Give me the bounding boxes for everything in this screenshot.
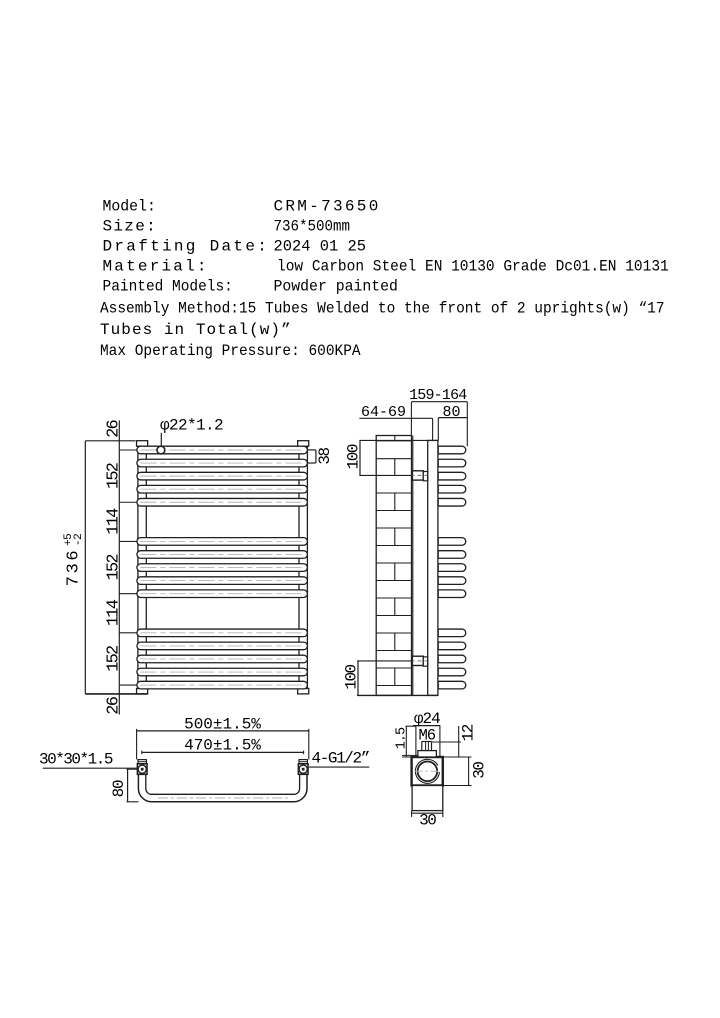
- svg-text:Assembly Method:15 Tubes Welde: Assembly Method:15 Tubes Welded to the f…: [100, 299, 665, 318]
- svg-text:26: 26: [104, 696, 123, 714]
- svg-text:80: 80: [110, 780, 128, 797]
- svg-text:114: 114: [104, 599, 123, 626]
- svg-text:Size:: Size:: [103, 218, 158, 236]
- svg-text:low Carbon Steel EN 10130 Grad: low Carbon Steel EN 10130 Grade Dc01.EN …: [277, 257, 669, 276]
- svg-text:38: 38: [316, 448, 334, 465]
- svg-text:CRM-73650: CRM-73650: [274, 198, 381, 216]
- svg-text:26: 26: [104, 420, 123, 438]
- svg-text:736: 736: [65, 548, 84, 586]
- svg-text:30: 30: [419, 812, 436, 830]
- svg-text:12: 12: [459, 724, 477, 741]
- svg-text:1.5: 1.5: [395, 727, 410, 749]
- svg-text:Max Operating Pressure: 600KPA: Max Operating Pressure: 600KPA: [100, 341, 361, 360]
- svg-text:4-G1/2”: 4-G1/2”: [312, 750, 370, 768]
- svg-text:Model:: Model:: [103, 197, 156, 216]
- svg-text:152: 152: [104, 646, 123, 672]
- svg-text:152: 152: [104, 555, 123, 581]
- svg-text:Painted Models:: Painted Models:: [103, 277, 233, 296]
- svg-text:500±1.5%: 500±1.5%: [184, 716, 261, 734]
- svg-text:30: 30: [471, 762, 489, 779]
- svg-text:80: 80: [442, 404, 460, 421]
- svg-text:152: 152: [104, 463, 123, 489]
- svg-text:Tubes in Total(w)”: Tubes in Total(w)”: [100, 321, 292, 339]
- svg-text:114: 114: [104, 508, 123, 535]
- svg-text:Material:: Material:: [103, 258, 209, 276]
- svg-text:30*30*1.5: 30*30*1.5: [39, 751, 113, 769]
- svg-text:φ24: φ24: [414, 710, 440, 728]
- svg-text:φ22*1.2: φ22*1.2: [160, 417, 223, 435]
- svg-text:736*500mm: 736*500mm: [274, 217, 351, 236]
- svg-text:Powder painted: Powder painted: [274, 277, 398, 296]
- svg-text:-2: -2: [73, 534, 85, 546]
- svg-text:100: 100: [344, 444, 362, 469]
- svg-text:159-164: 159-164: [409, 387, 467, 404]
- svg-text:64-69: 64-69: [361, 404, 406, 421]
- svg-text:2024 01 25: 2024 01 25: [274, 237, 366, 255]
- svg-text:Drafting Date:: Drafting Date:: [103, 238, 270, 256]
- svg-text:470±1.5%: 470±1.5%: [184, 737, 261, 755]
- svg-text:100: 100: [342, 664, 360, 689]
